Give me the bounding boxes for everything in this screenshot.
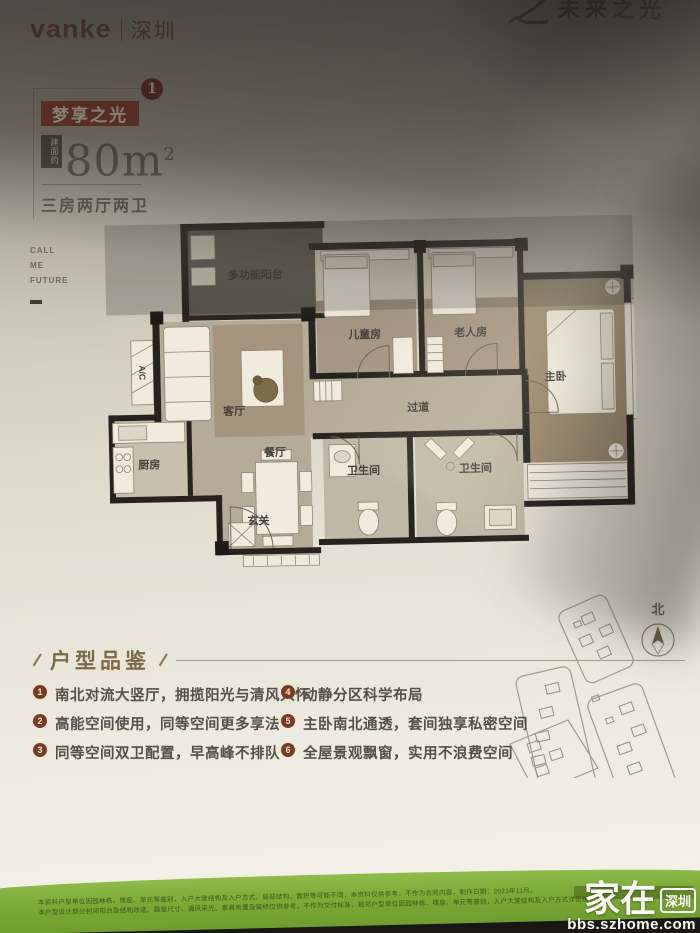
unit-name: 梦享之光 (41, 101, 139, 126)
watermark-url: bbs.szhome.com (567, 916, 696, 933)
plan-shadow-tint (104, 215, 634, 316)
heading-rule (176, 660, 685, 661)
feature-number: 2 (33, 714, 47, 728)
feature-item: 1 南北对流大竖厅，拥揽阳光与清风入怀 (33, 684, 310, 700)
heading-slash-left (33, 654, 42, 667)
watermark-row: 家在 深圳 (567, 882, 696, 916)
label-ac: A/C (137, 365, 147, 380)
feature-item: 6 全屋景观飘窗，实用不浪费空间 (281, 742, 528, 758)
feature-number: 3 (33, 743, 47, 757)
label-master: 主卧 (544, 369, 566, 383)
unit-title-block: 1 梦享之光 建面约 80m2 三房两厅两卫 (33, 88, 152, 219)
label-bath2: 卫生间 (459, 461, 492, 476)
feature-text: 南北对流大竖厅，拥揽阳光与清风入怀 (55, 684, 310, 705)
site-plan: 北 (506, 592, 692, 778)
logo-divider (121, 19, 122, 41)
label-dining: 餐厅 (263, 445, 286, 459)
compass-needle (652, 626, 664, 644)
vanke-logo: vanke 深圳 (30, 14, 177, 45)
feature-text: 全屋景观飘窗，实用不浪费空间 (303, 742, 513, 763)
site-units (527, 612, 646, 777)
future-light-text: 未来之光 (558, 0, 666, 24)
features-heading: 户型品鉴 (50, 645, 150, 675)
area-prefix-label: 建面约 (41, 135, 62, 168)
disclaimer-text: 本资料户型单位因园林栋、楼座、单元等差别，入户大堂结构及入户方式、局部结构、面积… (38, 883, 658, 918)
feature-item: 5 主卧南北通透，套间独享私密空间 (281, 713, 528, 729)
side-note-line: FUTURE (30, 273, 68, 288)
label-entry: 玄关 (247, 513, 269, 527)
side-note-line: ME (30, 258, 68, 273)
unit-area: 建面约 80m2 (41, 135, 176, 181)
features-column-right: 4 动静分区科学布局 5 主卧南北通透，套间独享私密空间 6 全屋景观飘窗，实用… (281, 684, 528, 771)
future-light-logo: 之 未来之光 (506, 0, 666, 28)
feature-number: 5 (281, 714, 295, 728)
side-note-line: CALL (30, 243, 68, 258)
calligraphy-glyph: 之 (506, 0, 550, 28)
area-superscript: 2 (164, 144, 176, 165)
floor-plan: 多功能阳台 A/C 客厅 餐厅 厨房 玄关 儿童房 老人房 过道 主卧 卫生间 … (104, 215, 639, 584)
szhome-watermark: 家在 深圳 bbs.szhome.com (567, 882, 696, 933)
feature-text: 高能空间使用，同等空间更多享法 (55, 713, 280, 734)
label-kids: 儿童房 (347, 327, 381, 342)
side-dash-mark (30, 300, 42, 304)
feature-number: 6 (281, 743, 295, 757)
feature-item: 2 高能空间使用，同等空间更多享法 (33, 713, 310, 729)
feature-number: 4 (281, 685, 295, 699)
watermark-title: 家在 (584, 882, 656, 916)
vanke-wordmark: vanke (30, 15, 112, 44)
label-elder: 老人房 (453, 325, 487, 340)
title-divider-line (41, 184, 141, 185)
label-corridor: 过道 (407, 400, 429, 414)
feature-text: 动静分区科学布局 (303, 684, 423, 705)
side-note: CALL ME FUTURE (30, 243, 68, 288)
north-label: 北 (651, 602, 664, 617)
unit-number-badge: 1 (141, 78, 163, 100)
city-label: 深圳 (131, 15, 177, 45)
features-column-left: 1 南北对流大竖厅，拥揽阳光与清风入怀 2 高能空间使用，同等空间更多享法 3 … (33, 684, 310, 771)
watermark-city-badge: 深圳 (660, 888, 696, 913)
label-bath1: 卫生间 (347, 463, 380, 478)
label-living: 客厅 (222, 404, 245, 418)
area-value: 80m2 (65, 135, 176, 181)
features-heading-row: 户型品鉴 (30, 645, 685, 675)
label-balcony: 多功能阳台 (228, 267, 283, 282)
unit-layout-label: 三房两厅两卫 (41, 192, 149, 216)
feature-item: 3 同等空间双卫配置，早高峰不排队 (33, 742, 310, 758)
feature-item: 4 动静分区科学布局 (281, 684, 528, 700)
brochure-page: vanke 深圳 之 未来之光 1 梦享之光 建面约 80m2 三房两厅两卫 C… (0, 0, 700, 933)
feature-text: 同等空间双卫配置，早高峰不排队 (55, 742, 280, 763)
label-kitchen: 厨房 (138, 457, 160, 471)
feature-text: 主卧南北通透，套间独享私密空间 (303, 713, 528, 734)
feature-number: 1 (33, 685, 47, 699)
heading-slash-right (159, 654, 168, 667)
